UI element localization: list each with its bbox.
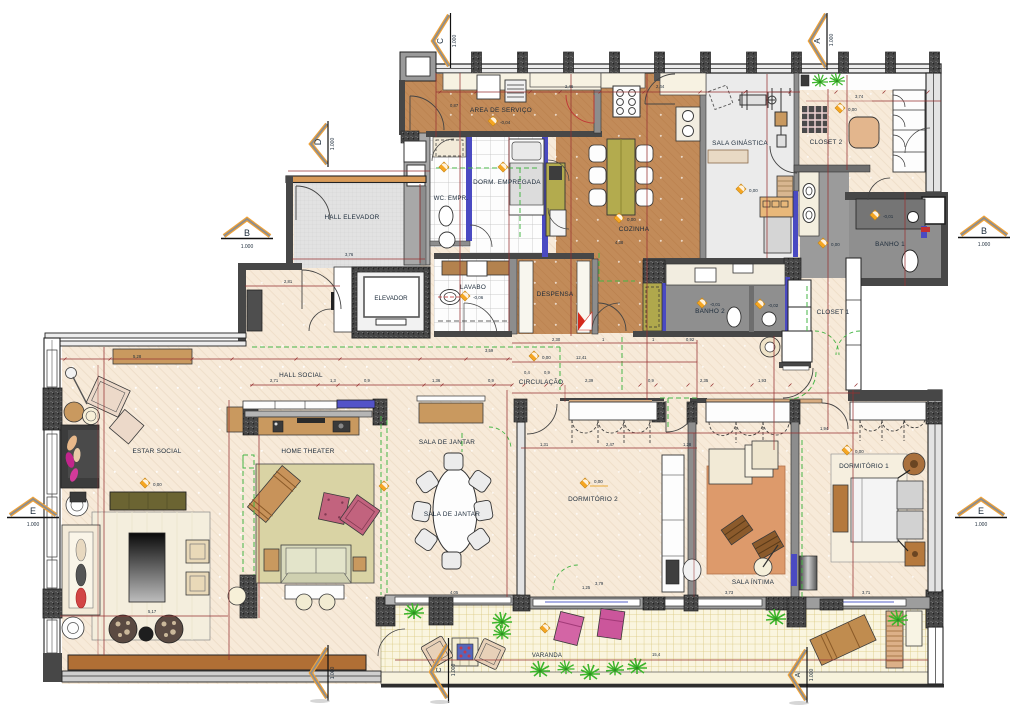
- svg-text:1.000: 1.000: [451, 664, 457, 677]
- svg-text:1,28: 1,28: [683, 442, 692, 447]
- svg-text:3,73: 3,73: [725, 590, 734, 595]
- svg-text:1,31: 1,31: [540, 442, 549, 447]
- svg-text:0,9: 0,9: [648, 378, 654, 383]
- svg-text:ELEVADOR: ELEVADOR: [374, 295, 408, 302]
- svg-text:1.000: 1.000: [975, 522, 988, 528]
- svg-text:2,47: 2,47: [606, 442, 615, 447]
- svg-text:4,05: 4,05: [450, 590, 459, 595]
- svg-text:-0,01: -0,01: [710, 302, 721, 307]
- svg-text:3,71: 3,71: [862, 590, 871, 595]
- svg-text:1.000: 1.000: [809, 669, 815, 682]
- svg-text:1.000: 1.000: [330, 667, 336, 680]
- svg-text:0,00: 0,00: [855, 449, 864, 454]
- svg-text:0,4: 0,4: [524, 370, 530, 375]
- svg-text:12,41: 12,41: [576, 355, 587, 360]
- svg-text:3,79: 3,79: [595, 581, 604, 586]
- svg-text:A: A: [795, 672, 802, 677]
- svg-text:15,4: 15,4: [652, 652, 661, 657]
- svg-text:DORMITÓRIO 2: DORMITÓRIO 2: [568, 494, 618, 503]
- svg-text:0,87: 0,87: [450, 103, 459, 108]
- svg-text:1,25: 1,25: [582, 585, 591, 590]
- svg-text:COZINHA: COZINHA: [619, 226, 650, 233]
- svg-text:4,38: 4,38: [615, 240, 624, 245]
- svg-text:B: B: [981, 226, 987, 236]
- svg-text:2,39: 2,39: [585, 378, 594, 383]
- svg-text:2,46: 2,46: [565, 84, 574, 89]
- svg-text:B: B: [244, 228, 250, 238]
- svg-text:SALA GINÁSTICA: SALA GINÁSTICA: [712, 138, 768, 147]
- svg-text:AREA DE SERVIÇO: AREA DE SERVIÇO: [470, 107, 532, 114]
- svg-text:1,3: 1,3: [330, 378, 336, 383]
- svg-text:1.000: 1.000: [241, 244, 254, 250]
- svg-text:1,94: 1,94: [820, 426, 829, 431]
- svg-text:2,44: 2,44: [656, 84, 665, 89]
- svg-text:BANHO 1: BANHO 1: [875, 241, 905, 248]
- svg-text:CLOSET 2: CLOSET 2: [810, 139, 843, 146]
- svg-text:5,28: 5,28: [133, 354, 142, 359]
- svg-text:1.000: 1.000: [452, 35, 458, 48]
- svg-text:C: C: [436, 38, 445, 44]
- svg-text:2,81: 2,81: [284, 279, 293, 284]
- svg-text:HALL ELEVADOR: HALL ELEVADOR: [324, 214, 379, 221]
- svg-text:5,17: 5,17: [148, 609, 157, 614]
- svg-text:C: C: [436, 667, 443, 672]
- svg-text:WC. EMPR.: WC. EMPR.: [434, 196, 469, 202]
- svg-text:1,93: 1,93: [758, 378, 767, 383]
- svg-text:DESPENSA: DESPENSA: [537, 291, 574, 298]
- svg-text:VARANDA: VARANDA: [532, 653, 562, 659]
- svg-text:0,9: 0,9: [488, 378, 494, 383]
- svg-text:D: D: [313, 138, 323, 145]
- svg-text:SALA ÍNTIMA: SALA ÍNTIMA: [732, 577, 775, 586]
- svg-text:CLOSET 1: CLOSET 1: [817, 309, 850, 316]
- svg-text:A: A: [813, 38, 822, 44]
- svg-text:0,00: 0,00: [594, 479, 603, 484]
- svg-text:DORMITÓRIO 1: DORMITÓRIO 1: [839, 461, 889, 470]
- svg-text:3,76: 3,76: [345, 252, 354, 257]
- svg-text:0,9: 0,9: [364, 378, 370, 383]
- svg-text:-0,02: -0,02: [768, 303, 779, 308]
- svg-text:1.000: 1.000: [829, 34, 835, 47]
- svg-text:1.000: 1.000: [27, 522, 40, 528]
- svg-text:3,74: 3,74: [855, 94, 864, 99]
- svg-text:1.000: 1.000: [330, 138, 336, 151]
- svg-text:2,30: 2,30: [552, 337, 561, 342]
- svg-text:0,00: 0,00: [153, 482, 162, 487]
- svg-text:0,00: 0,00: [542, 355, 551, 360]
- svg-text:1,36: 1,36: [432, 378, 441, 383]
- svg-text:DORM. EMPREGADA: DORM. EMPREGADA: [473, 179, 541, 186]
- svg-text:LAVABO: LAVABO: [460, 284, 486, 291]
- svg-text:CIRCULAÇÃO: CIRCULAÇÃO: [519, 377, 563, 386]
- svg-text:0,00: 0,00: [848, 107, 857, 112]
- svg-text:0,00: 0,00: [749, 188, 758, 193]
- svg-text:2,35: 2,35: [700, 378, 709, 383]
- svg-text:-0,01: -0,01: [883, 214, 894, 219]
- svg-text:SALA DE JANTAR: SALA DE JANTAR: [424, 511, 480, 518]
- svg-text:-0,04: -0,04: [500, 120, 511, 125]
- svg-text:SALA DE JANTAR: SALA DE JANTAR: [419, 439, 475, 446]
- svg-text:1.000: 1.000: [978, 242, 991, 248]
- svg-text:HOME THEATER: HOME THEATER: [281, 448, 334, 455]
- svg-text:-0,06: -0,06: [473, 295, 484, 300]
- svg-text:E: E: [30, 506, 36, 516]
- svg-text:E: E: [978, 506, 984, 516]
- svg-text:2,71: 2,71: [270, 378, 279, 383]
- svg-text:BANHO 2: BANHO 2: [695, 308, 725, 315]
- svg-text:0,92: 0,92: [686, 337, 695, 342]
- svg-text:3,59: 3,59: [485, 348, 494, 353]
- svg-text:0,9: 0,9: [544, 370, 550, 375]
- svg-text:ESTAR SOCIAL: ESTAR SOCIAL: [132, 448, 181, 455]
- svg-text:0,00: 0,00: [831, 242, 840, 247]
- svg-text:0,00: 0,00: [627, 217, 636, 222]
- svg-text:HALL SOCIAL: HALL SOCIAL: [279, 372, 323, 379]
